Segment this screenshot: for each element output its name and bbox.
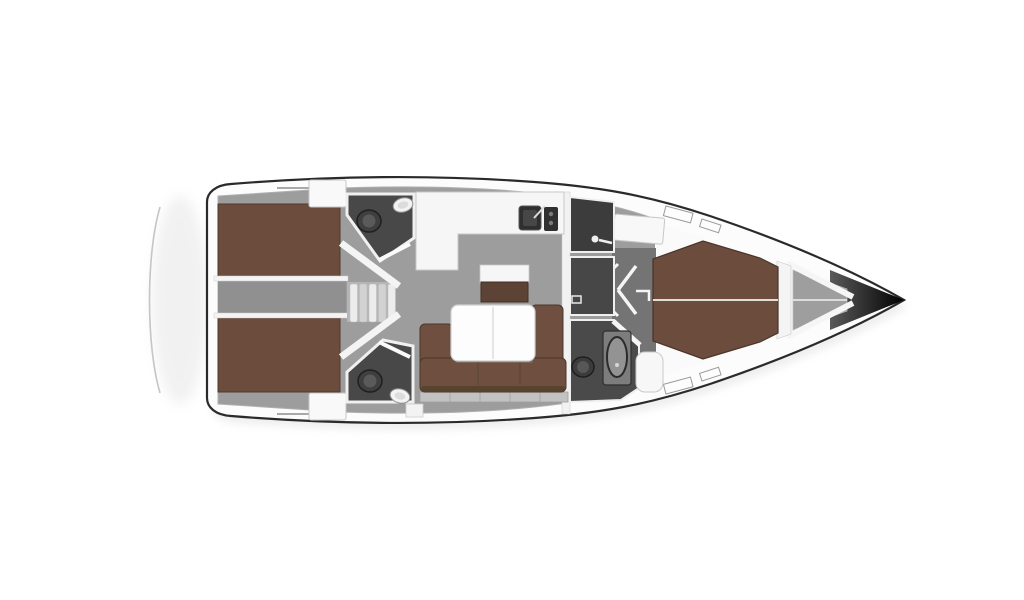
cabin-wall-port [214, 276, 348, 281]
forward-bulkhead [777, 261, 791, 339]
aft-berth-starboard [218, 318, 340, 392]
aft-cabins [214, 180, 348, 420]
forward-toilet-seat [577, 361, 589, 373]
forward-locker [613, 214, 665, 244]
yacht-floor-plan-canvas: Sailing yacht interior floor plan — top-… [0, 0, 1024, 600]
vanity-basin [607, 337, 627, 377]
stair-tread-4 [379, 284, 387, 322]
aft-head-port-toilet-seat [363, 215, 376, 228]
settee-base-trim [420, 392, 568, 402]
storage-cabinet-top [480, 265, 529, 283]
storage-cabinet [481, 282, 528, 302]
cabin-wall-starboard [214, 313, 348, 318]
companionway-step [406, 404, 423, 417]
stair-tread-1 [350, 284, 358, 322]
shower-room-floor [570, 197, 614, 252]
galley-stove [544, 207, 558, 231]
hanging-locker-port [309, 180, 346, 207]
stair-tread-3 [369, 284, 377, 322]
stair-tread-2 [360, 284, 368, 322]
settee-front-edge [421, 386, 565, 392]
stove-burner-1 [549, 212, 553, 216]
stove-burner-2 [549, 221, 553, 225]
forward-seat [636, 352, 663, 392]
wc-room-floor [570, 257, 614, 315]
yacht-floor-plan: Sailing yacht interior floor plan — top-… [0, 0, 1024, 600]
basin-drain [615, 363, 619, 367]
hanging-locker-starboard [309, 393, 346, 420]
aft-berth-port [218, 204, 340, 278]
stern-shadow [152, 196, 208, 404]
shower-head-icon [592, 236, 599, 243]
engine-compartment [218, 281, 346, 313]
aft-head-starboard-toilet-seat [364, 375, 377, 388]
